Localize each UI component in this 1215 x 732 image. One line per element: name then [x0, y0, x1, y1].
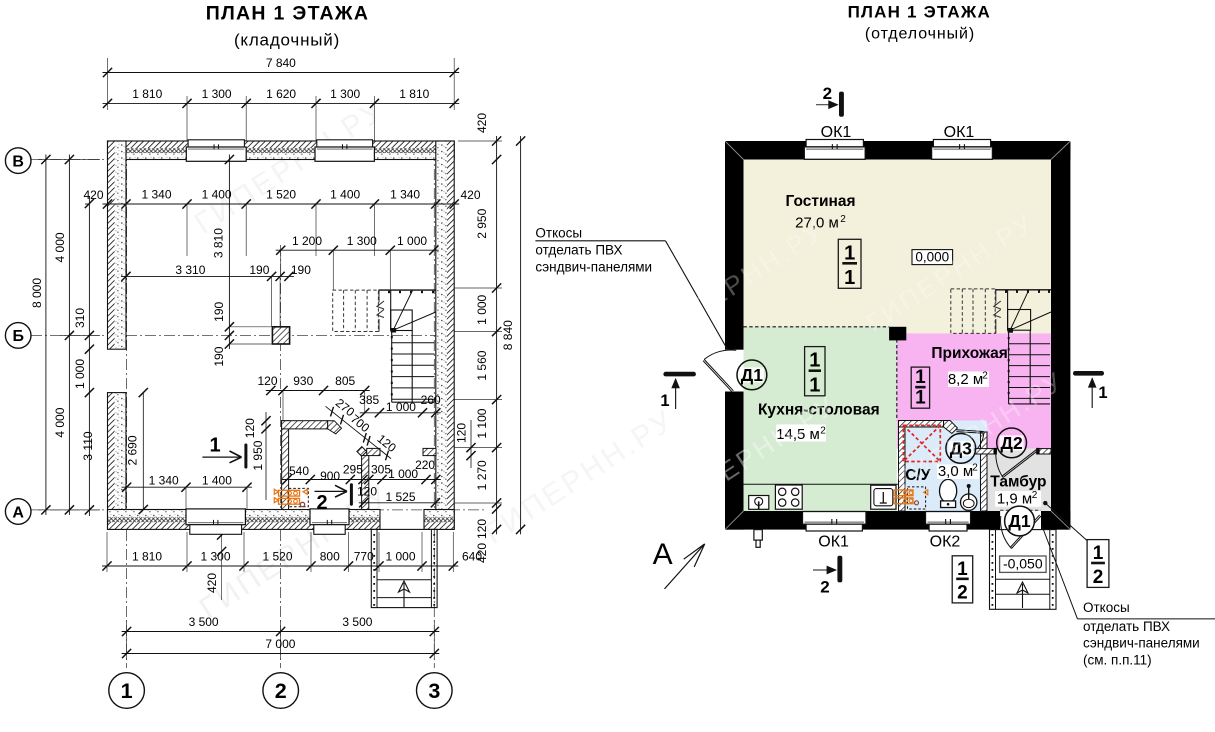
- svg-text:1 400: 1 400: [202, 474, 232, 488]
- svg-text:1: 1: [660, 392, 669, 410]
- svg-text:420: 420: [83, 188, 103, 202]
- svg-text:1 620: 1 620: [266, 87, 296, 101]
- svg-text:-0,050: -0,050: [1003, 556, 1043, 572]
- svg-text:295: 295: [343, 463, 363, 477]
- svg-text:900: 900: [320, 469, 340, 483]
- svg-text:190: 190: [212, 346, 226, 366]
- svg-text:540: 540: [289, 464, 309, 478]
- svg-text:8,2 м: 8,2 м: [948, 371, 983, 388]
- svg-text:ОК1: ОК1: [821, 124, 852, 141]
- svg-text:190: 190: [249, 263, 269, 277]
- svg-text:1 270: 1 270: [475, 460, 489, 490]
- svg-text:Д1: Д1: [1008, 511, 1030, 531]
- svg-text:3 310: 3 310: [175, 263, 205, 277]
- svg-text:Откосы: Откосы: [535, 226, 582, 241]
- svg-text:3 500: 3 500: [342, 615, 372, 629]
- svg-text:2 950: 2 950: [475, 208, 489, 238]
- svg-text:2: 2: [1032, 490, 1038, 501]
- svg-text:1 300: 1 300: [330, 87, 360, 101]
- svg-text:А: А: [12, 504, 24, 521]
- svg-text:1 950: 1 950: [251, 440, 265, 470]
- svg-text:1 000: 1 000: [397, 234, 427, 248]
- svg-text:120: 120: [455, 423, 469, 443]
- svg-text:1 810: 1 810: [132, 87, 162, 101]
- svg-text:310: 310: [73, 308, 87, 328]
- svg-text:1: 1: [957, 559, 968, 580]
- svg-text:420: 420: [475, 113, 489, 133]
- svg-text:3 110: 3 110: [81, 431, 95, 460]
- svg-text:1: 1: [915, 367, 926, 388]
- svg-text:1 300: 1 300: [347, 234, 377, 248]
- svg-text:7 000: 7 000: [265, 637, 295, 651]
- svg-text:120: 120: [475, 519, 489, 539]
- svg-text:1 000: 1 000: [73, 359, 87, 389]
- svg-text:1 000: 1 000: [385, 550, 415, 564]
- svg-text:Б: Б: [12, 328, 24, 345]
- svg-text:Д2: Д2: [1000, 433, 1022, 453]
- svg-text:930: 930: [293, 374, 313, 388]
- svg-text:8 840: 8 840: [501, 320, 515, 350]
- svg-text:сэндвич-панелями: сэндвич-панелями: [535, 260, 652, 275]
- svg-text:2: 2: [1093, 567, 1104, 588]
- svg-text:190: 190: [291, 263, 311, 277]
- svg-text:1 340: 1 340: [149, 474, 179, 488]
- svg-text:1: 1: [915, 388, 926, 409]
- svg-text:ПЛАН 1 ЭТАЖА: ПЛАН 1 ЭТАЖА: [848, 3, 991, 22]
- svg-text:А: А: [653, 538, 673, 571]
- svg-text:1 300: 1 300: [200, 550, 230, 564]
- svg-text:2: 2: [957, 582, 968, 603]
- svg-text:(отделочный): (отделочный): [865, 26, 975, 43]
- svg-text:1 340: 1 340: [390, 188, 420, 202]
- svg-text:260: 260: [421, 393, 441, 407]
- svg-text:1 000: 1 000: [386, 400, 416, 414]
- svg-text:1: 1: [844, 267, 855, 289]
- svg-text:1: 1: [1098, 384, 1107, 402]
- svg-text:1 200: 1 200: [292, 234, 322, 248]
- svg-text:2: 2: [316, 492, 327, 514]
- svg-text:сэндвич-панелями: сэндвич-панелями: [1083, 636, 1200, 651]
- svg-text:1: 1: [1093, 543, 1104, 564]
- svg-text:2: 2: [820, 578, 829, 597]
- svg-text:805: 805: [335, 374, 355, 388]
- svg-text:120: 120: [357, 485, 377, 499]
- svg-text:4 000: 4 000: [53, 232, 67, 262]
- svg-text:120: 120: [257, 374, 277, 388]
- svg-text:2: 2: [823, 84, 832, 103]
- svg-text:3 500: 3 500: [189, 615, 219, 629]
- svg-text:Тамбур: Тамбур: [990, 474, 1046, 491]
- svg-text:2 690: 2 690: [125, 435, 139, 465]
- svg-text:420: 420: [475, 543, 489, 563]
- svg-text:1 810: 1 810: [399, 87, 429, 101]
- svg-text:8 000: 8 000: [30, 278, 44, 308]
- svg-text:2: 2: [982, 371, 988, 382]
- svg-text:2: 2: [840, 214, 846, 225]
- svg-text:В: В: [12, 153, 24, 170]
- svg-text:7 840: 7 840: [266, 56, 296, 70]
- svg-text:2: 2: [275, 679, 287, 703]
- svg-text:120: 120: [243, 418, 257, 438]
- svg-text:отделать ПВХ: отделать ПВХ: [1083, 619, 1170, 634]
- svg-text:1 100: 1 100: [475, 408, 489, 438]
- svg-text:1 340: 1 340: [141, 188, 171, 202]
- svg-text:220: 220: [415, 458, 435, 472]
- svg-text:Прихожая: Прихожая: [931, 345, 1007, 362]
- svg-text:Д1: Д1: [741, 365, 763, 385]
- svg-text:1,9 м: 1,9 м: [997, 491, 1032, 508]
- svg-text:1 400: 1 400: [330, 188, 360, 202]
- svg-text:1: 1: [809, 350, 820, 372]
- svg-text:1 525: 1 525: [385, 490, 415, 504]
- svg-text:(см. п.п.11): (см. п.п.11): [1083, 653, 1152, 668]
- svg-text:Откосы: Откосы: [1083, 600, 1130, 615]
- svg-text:(кладочный): (кладочный): [234, 31, 340, 50]
- svg-text:3: 3: [428, 679, 440, 703]
- svg-text:отделать ПВХ: отделать ПВХ: [535, 243, 622, 258]
- svg-text:1: 1: [121, 679, 133, 703]
- svg-text:2: 2: [972, 463, 978, 474]
- svg-text:420: 420: [205, 573, 219, 593]
- svg-text:1: 1: [844, 242, 855, 264]
- svg-text:3 810: 3 810: [212, 228, 226, 258]
- svg-text:Гостиная: Гостиная: [785, 193, 855, 210]
- svg-text:1 520: 1 520: [262, 550, 292, 564]
- svg-text:ПЛАН 1 ЭТАЖА: ПЛАН 1 ЭТАЖА: [206, 3, 370, 25]
- svg-text:1 810: 1 810: [132, 550, 162, 564]
- svg-text:420: 420: [460, 188, 480, 202]
- svg-text:1 560: 1 560: [475, 350, 489, 380]
- svg-text:1: 1: [209, 435, 220, 457]
- svg-text:ОК2: ОК2: [930, 534, 961, 551]
- svg-text:ОК1: ОК1: [944, 124, 975, 141]
- svg-text:190: 190: [212, 301, 226, 321]
- svg-text:1 300: 1 300: [202, 87, 232, 101]
- svg-text:4 000: 4 000: [53, 407, 67, 437]
- svg-text:385: 385: [359, 393, 379, 407]
- svg-text:1 400: 1 400: [202, 188, 232, 202]
- svg-text:1 000: 1 000: [475, 294, 489, 324]
- svg-text:ОК1: ОК1: [818, 534, 849, 551]
- svg-text:1 520: 1 520: [266, 188, 296, 202]
- svg-text:800: 800: [320, 550, 340, 564]
- svg-text:1 000: 1 000: [388, 467, 418, 481]
